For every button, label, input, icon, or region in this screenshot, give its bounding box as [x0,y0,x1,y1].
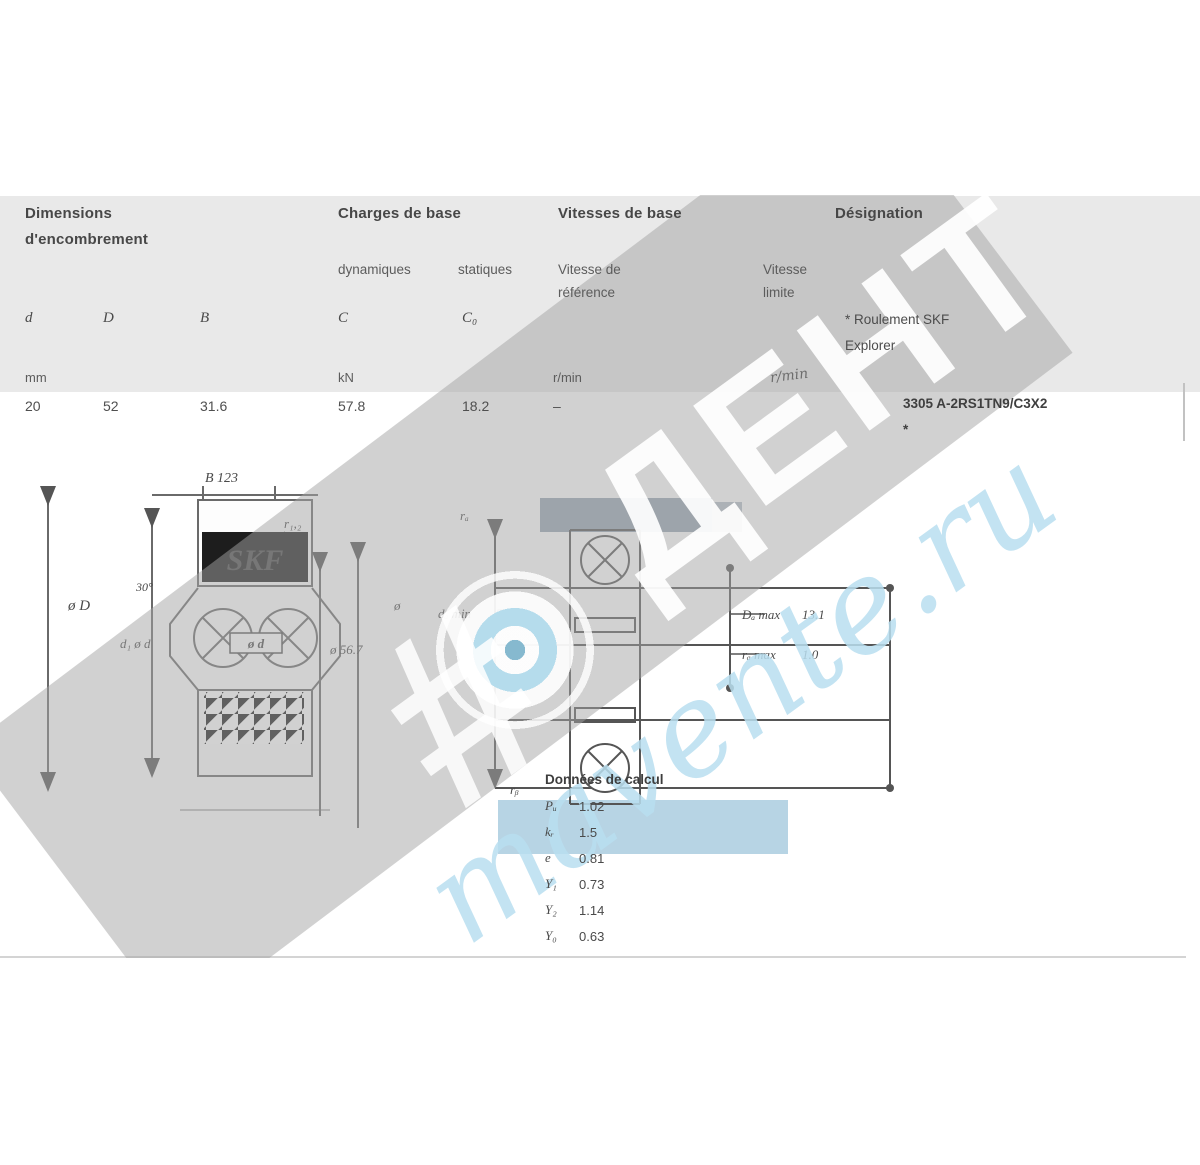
fillet-r12-label: r₁,₂ [284,516,302,531]
cell-designation-star: * [903,422,908,437]
abutment-ra-value: 1.0 [802,647,819,662]
designation-divider [1183,383,1185,441]
calc-row-Y2: Y₂ 1.14 [545,897,785,923]
calc-row-Pu: Pᵤ 1.02 [545,793,785,819]
calc-value: 0.63 [579,929,604,944]
bottom-rule [0,956,1186,958]
catalog-page: Dimensions d'encombrement Charges de bas… [0,0,1200,1165]
footnote-skf-line2: Explorer [845,338,895,353]
calc-row-e: e 0.81 [545,845,785,871]
col-symbol-B: B [200,310,209,327]
header-basic-loads: Charges de base [338,205,461,222]
shoulder-diameter-label: ø 56.7 [329,642,363,657]
subheader-ref-speed-line1: Vitesse de [558,262,621,277]
abutment-Da-label: Dₐ max [741,607,780,622]
calc-label: Y₁ [545,876,579,892]
cell-load-C: 57.8 [338,398,365,414]
header-dimensions-line1: Dimensions [25,205,112,222]
unit-mm: mm [25,370,47,385]
calc-value: 1.14 [579,903,604,918]
col-symbol-d: d [25,310,33,327]
brand-logo-text: SKF [227,544,284,577]
abutment-ra-label: rₐ max [742,647,776,662]
cell-load-C0: 18.2 [462,398,489,414]
outer-diameter-label: ø D [67,598,90,614]
calc-row-Y0: Y₀ 0.63 [545,923,785,949]
ball-row [581,536,629,792]
cell-width-B: 31.6 [200,398,227,414]
hatched-ring-section [204,692,304,744]
subheader-limit-speed-line2: limite [763,285,795,300]
calculation-data-block: Données de calcul Pᵤ 1.02 kᵣ 1.5 e 0.81 … [545,772,785,949]
header-speeds: Vitesses de base [558,205,682,222]
subheader-dynamic: dynamiques [338,262,411,277]
diameter-symbol-label: ø [393,598,401,613]
col-symbol-C0: C₀ [462,310,477,327]
calc-label: Pᵤ [545,798,579,814]
unit-kN: kN [338,370,354,385]
calc-value: 1.02 [579,799,604,814]
footnote-skf-line1: * Roulement SKF [845,312,949,327]
cell-designation: 3305 A-2RS1TN9/C3X2 [903,396,1047,411]
calc-row-Y1: Y₁ 0.73 [545,871,785,897]
header-dimensions-line2: d'encombrement [25,231,148,248]
calc-label: Y₀ [545,928,579,944]
col-symbol-D: D [103,310,114,327]
calc-row-kr: kᵣ 1.5 [545,819,785,845]
abutment-Da-value: 13.1 [802,607,825,622]
calc-label: Y₂ [545,902,579,918]
col-symbol-C: C [338,310,348,327]
calc-value: 1.5 [579,825,597,840]
subheader-static: statiques [458,262,512,277]
contact-angle-label: 30° [135,580,153,594]
calc-value: 0.81 [579,851,604,866]
calculation-data-title: Données de calcul [545,772,785,787]
header-designation: Désignation [835,205,923,222]
unit-rpm-reference: r/min [553,370,582,385]
calc-value: 0.73 [579,877,604,892]
fillet-rb-label: rᵦ [510,782,519,797]
housing-shoulder-bar [540,498,712,532]
housing-shoulder-step [712,502,742,532]
calc-label: kᵣ [545,824,579,840]
inner-diameter-label: d₁ ø d [120,636,151,651]
calc-label: e [545,850,579,866]
abutment-da-label: dₐ min [438,606,471,621]
bearing-section-drawing: SKF ø d B 123 r₁,₂ ø D d₁ ø d ø 56.7 ø 3… [30,458,430,833]
fillet-ra-top-label: rₐ [460,508,469,523]
subheader-limit-speed-line1: Vitesse [763,262,807,277]
subheader-ref-speed-line2: référence [558,285,615,300]
bore-dimension-label: ø d [247,636,265,651]
cell-outer-D: 52 [103,398,119,414]
width-B-label: B 123 [205,471,238,486]
cell-bore-d: 20 [25,398,41,414]
abutment-da-value: 7.6 [496,606,513,621]
cell-speed-ref: – [553,398,561,414]
